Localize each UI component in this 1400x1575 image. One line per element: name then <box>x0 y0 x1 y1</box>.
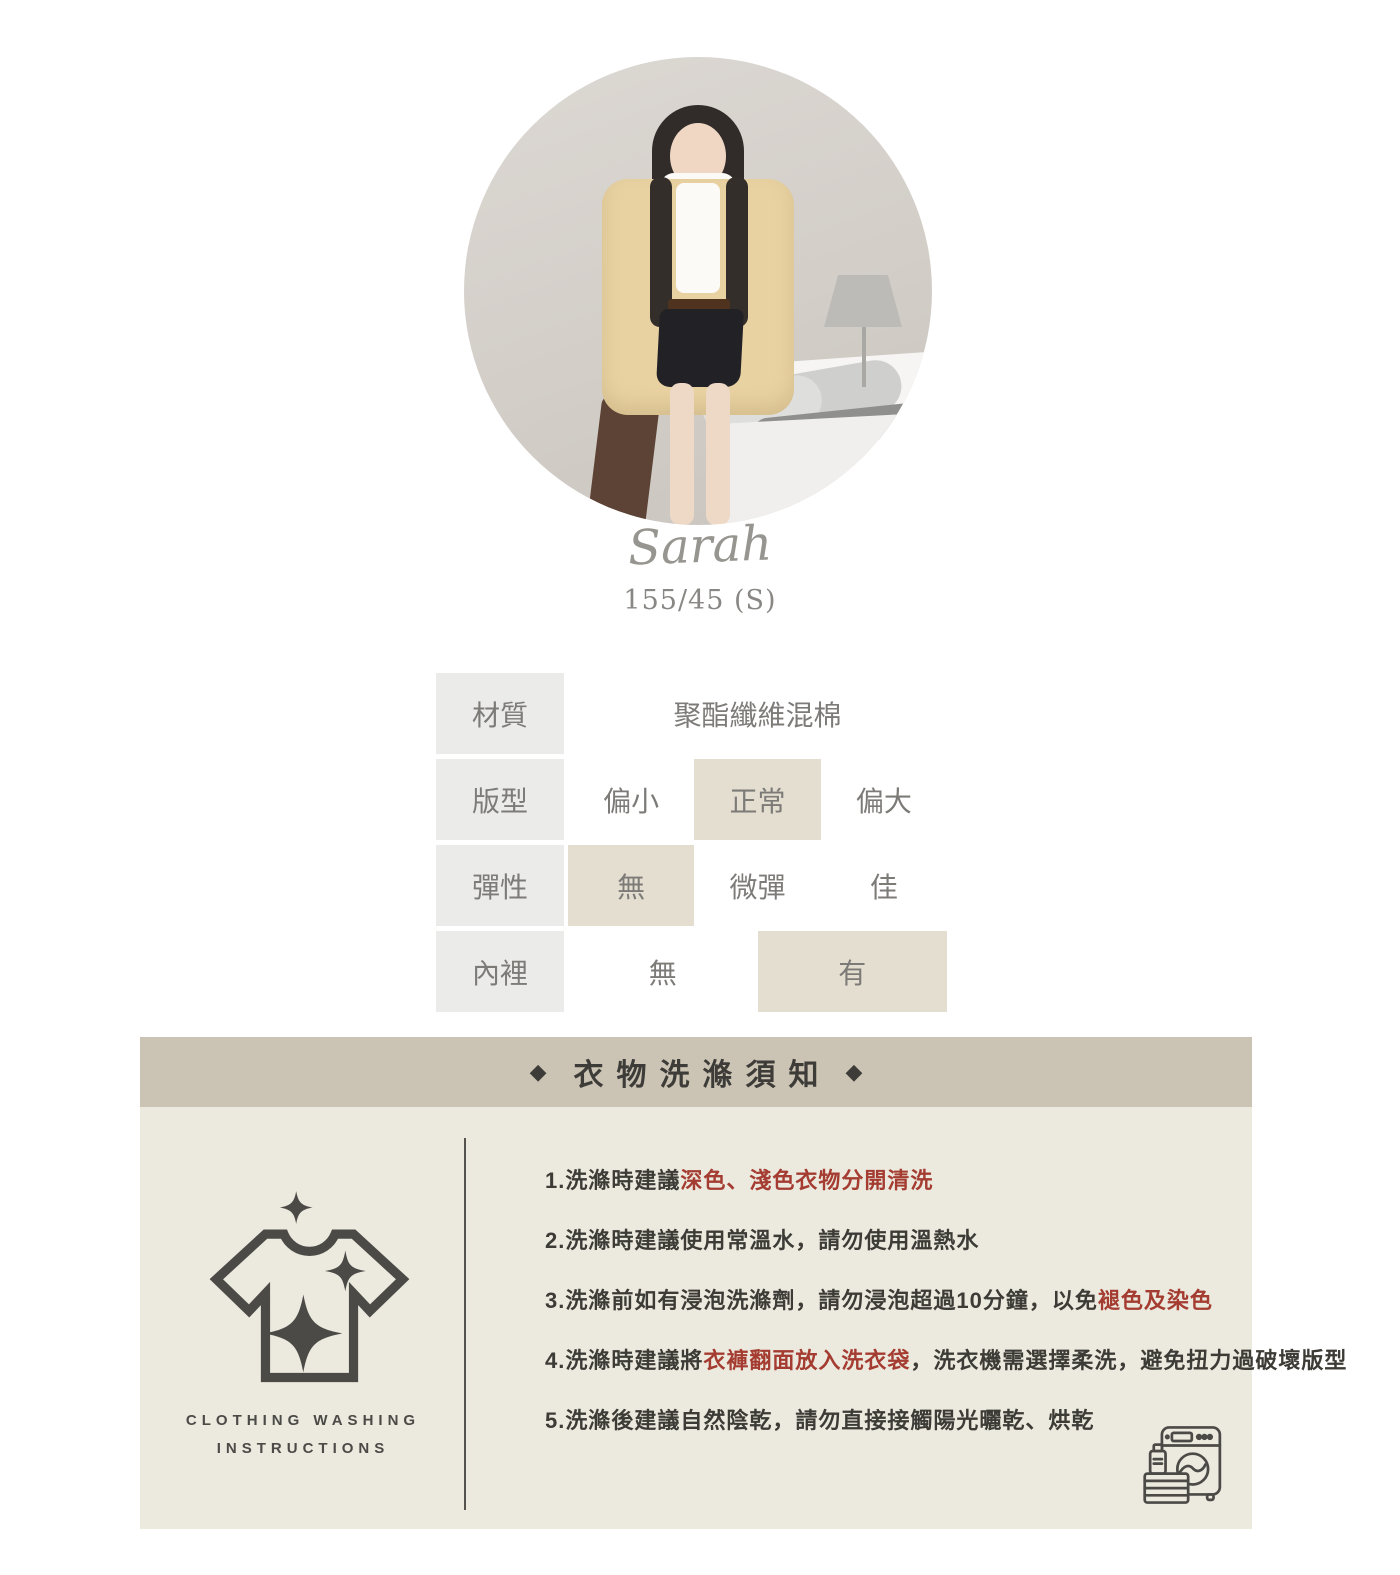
washing-instruction: 2.洗滌時建議使用常溫水，請勿使用溫熱水 <box>545 1229 1347 1253</box>
washing-title: 衣物洗滌須知 <box>574 1050 832 1094</box>
spec-row: 彈性無微彈佳 <box>436 845 947 926</box>
tshirt-sparkle-icon <box>202 1185 417 1400</box>
vertical-divider <box>464 1138 466 1510</box>
instruction-highlight: 深色、淺色衣物分開清洗 <box>680 1168 933 1193</box>
washing-machine-icon <box>1142 1420 1228 1510</box>
instruction-highlight: 褪色及染色 <box>1098 1288 1213 1313</box>
diamond-icon: ◆ <box>530 1059 547 1085</box>
instruction-text: 4.洗滌時建議將 <box>545 1348 703 1373</box>
spec-label-cell: 內裡 <box>436 931 564 1012</box>
spec-label-cell: 版型 <box>436 759 564 840</box>
washing-side-label-line2: INSTRUCTIONS <box>140 1435 466 1463</box>
spec-option-cell: 無 <box>568 845 694 926</box>
photo-model-coat-opening <box>676 183 720 293</box>
washing-side-label: CLOTHING WASHING INSTRUCTIONS <box>140 1407 466 1463</box>
spec-option-cell: 有 <box>758 931 948 1012</box>
washing-body-panel: CLOTHING WASHING INSTRUCTIONS 1.洗滌時建議深色、… <box>140 1107 1252 1529</box>
photo-mattress <box>707 410 932 525</box>
spec-row: 材質聚酯纖維混棉 <box>436 673 947 754</box>
model-photo <box>464 57 932 525</box>
washing-header-bar: ◆ 衣物洗滌須知 ◆ <box>140 1037 1252 1107</box>
spec-option-cell: 微彈 <box>694 845 820 926</box>
spec-label-cell: 彈性 <box>436 845 564 926</box>
photo-lamp <box>824 275 902 327</box>
instruction-text: 3.洗滌前如有浸泡洗滌劑，請勿浸泡超過10分鐘，以免 <box>545 1288 1098 1313</box>
instruction-highlight: 衣褲翻面放入洗衣袋 <box>703 1348 910 1373</box>
spec-value-cell: 聚酯纖維混棉 <box>568 673 947 754</box>
washing-instruction: 4.洗滌時建議將衣褲翻面放入洗衣袋，洗衣機需選擇柔洗，避免扭力過破壞版型 <box>545 1349 1347 1373</box>
spec-row: 內裡無有 <box>436 931 947 1012</box>
washing-side-label-line1: CLOTHING WASHING <box>140 1407 466 1435</box>
model-stats: 155/45 (S) <box>0 585 1400 616</box>
spec-row: 版型偏小正常偏大 <box>436 759 947 840</box>
photo-model-skirt <box>656 309 744 387</box>
instruction-text: 2.洗滌時建議使用常溫水，請勿使用溫熱水 <box>545 1228 979 1253</box>
spec-option-cell: 無 <box>568 931 758 1012</box>
instruction-text: 5.洗滌後建議自然陰乾，請勿直接接觸陽光曬乾、烘乾 <box>545 1408 1094 1433</box>
washing-instruction: 3.洗滌前如有浸泡洗滌劑，請勿浸泡超過10分鐘，以免褪色及染色 <box>545 1289 1347 1313</box>
spec-option-cell: 佳 <box>821 845 947 926</box>
spec-label-cell: 材質 <box>436 673 564 754</box>
spec-option-cell: 正常 <box>694 759 820 840</box>
washing-instructions-section: ◆ 衣物洗滌須知 ◆ CLOTHING WASHING INSTRUCTIONS… <box>140 1037 1252 1529</box>
product-detail-page: Sarah 155/45 (S) 材質聚酯纖維混棉版型偏小正常偏大彈性無微彈佳內… <box>0 0 1400 1575</box>
instruction-text: ，洗衣機需選擇柔洗，避免扭力過破壞版型 <box>910 1348 1347 1373</box>
photo-model-leg <box>706 383 730 525</box>
diamond-icon: ◆ <box>846 1059 863 1085</box>
spec-table: 材質聚酯纖維混棉版型偏小正常偏大彈性無微彈佳內裡無有 <box>436 673 947 1017</box>
washing-instruction: 1.洗滌時建議深色、淺色衣物分開清洗 <box>545 1169 1347 1193</box>
spec-option-cell: 偏大 <box>821 759 947 840</box>
photo-lamp-stem <box>862 327 866 387</box>
photo-model-leg <box>670 383 694 525</box>
spec-option-cell: 偏小 <box>568 759 694 840</box>
instruction-text: 1.洗滌時建議 <box>545 1168 680 1193</box>
